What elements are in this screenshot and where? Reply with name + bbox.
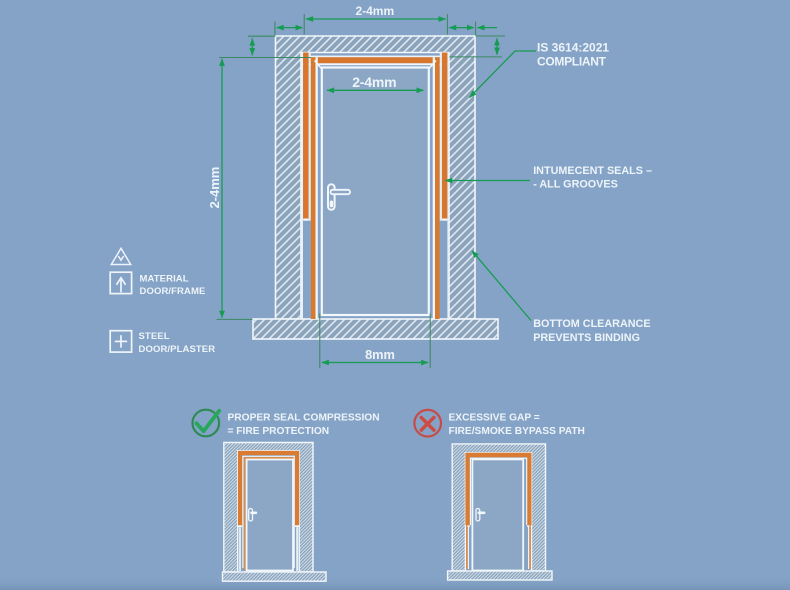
svg-text:8mm: 8mm: [365, 347, 395, 362]
svg-text:2-4mm: 2-4mm: [355, 4, 394, 18]
svg-text:2-4mm: 2-4mm: [352, 74, 396, 90]
svg-text:DOOR/FRAME: DOOR/FRAME: [140, 286, 206, 297]
svg-text:BOTTOM CLEARANCE: BOTTOM CLEARANCE: [533, 318, 650, 330]
svg-text:EXCESSIVE GAP =: EXCESSIVE GAP =: [449, 412, 540, 423]
svg-text:DOOR/PLASTER: DOOR/PLASTER: [139, 344, 216, 355]
svg-text:2-4mm: 2-4mm: [207, 167, 222, 209]
svg-text:FIRE/SMOKE BYPASS PATH: FIRE/SMOKE BYPASS PATH: [449, 426, 585, 437]
svg-text:- ALL GROOVES: - ALL GROOVES: [533, 179, 618, 191]
svg-text:COMPLIANT: COMPLIANT: [537, 55, 607, 69]
svg-text:PROPER SEAL COMPRESSION: PROPER SEAL COMPRESSION: [228, 412, 380, 423]
svg-text:PREVENTS BINDING: PREVENTS BINDING: [533, 332, 640, 344]
svg-text:MATERIAL: MATERIAL: [140, 273, 189, 284]
svg-text:IS 3614:2021: IS 3614:2021: [537, 40, 609, 54]
svg-text:INTUMECENT SEALS –: INTUMECENT SEALS –: [533, 165, 652, 177]
svg-text:= FIRE PROTECTION: = FIRE PROTECTION: [228, 426, 330, 437]
svg-text:STEEL: STEEL: [139, 331, 170, 342]
